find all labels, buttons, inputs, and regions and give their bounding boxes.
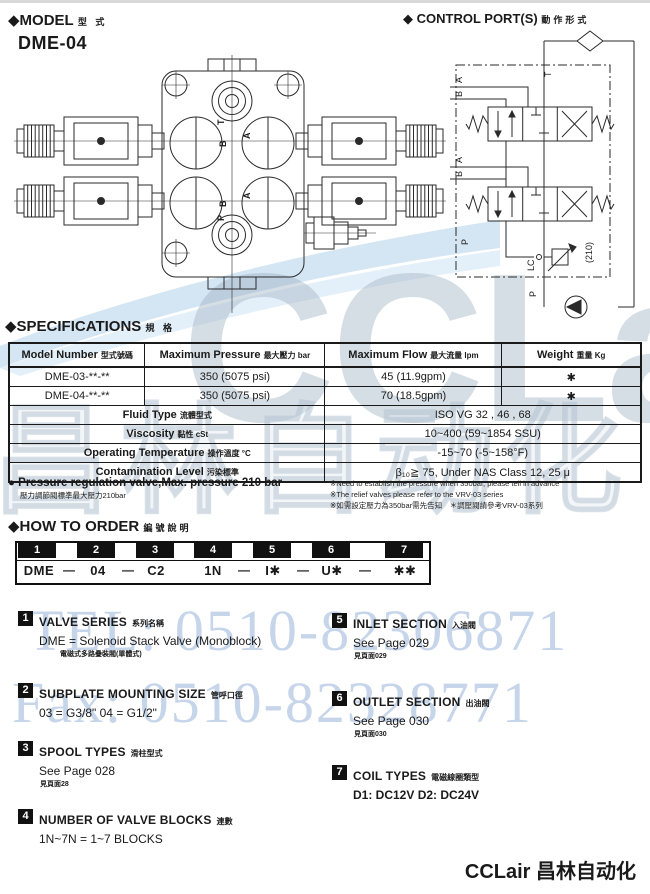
port-label-a-top: A [242,132,252,139]
table-row: Fluid Type 流體型式 ISO VG 32 , 46 , 68 [9,406,641,425]
section-line: See Page 028 [39,764,328,778]
table-row: Viscosity 黏性 cSt 10~400 (59~1854 SSU) [9,425,641,444]
property-value: ISO VG 32 , 46 , 68 [325,406,641,425]
pressure-regulation-note-cn: 壓力調節閥標準最大壓力210bar [20,490,328,501]
diamond-icon: ◆ [5,318,17,335]
section-number-badge: 7 [332,765,347,780]
section-line: DME = Solenoid Stack Valve (Monoblock) [39,634,328,648]
position-badge: 5 [253,543,291,558]
section-outlet: 6 OUTLET SECTION出油閥 See Page 030 見頁面030 [332,693,642,739]
cell-model: DME-04-**-** [9,387,145,406]
code-segment: I✱ [250,563,296,579]
section-number-of-blocks: 4 NUMBER OF VALVE BLOCKS連數 1N~7N = 1~7 B… [18,811,328,846]
position-badge: 6 [312,543,350,558]
port-label-b-bot: B [218,200,228,207]
header-max-pressure: Maximum Pressure 最大壓力 bar [145,343,325,367]
diamond-icon: ◆ [8,518,20,535]
table-row: Operating Temperature 操作溫度 °C -15~70 (-5… [9,444,641,463]
position-badge: 3 [136,543,174,558]
port-label-t: T [216,119,226,125]
section-line: 1N~7N = 1~7 BLOCKS [39,832,328,846]
order-code-table: 1 2 3 4 5 6 7 DME — 04 — C2 1N — I✱ — U✱… [15,541,431,585]
code-dash: — [355,563,375,577]
position-badge: 7 [385,543,423,558]
section-sub-cn: 電磁式多路疊裝閥(單體式) [60,649,328,659]
control-ports-title: ◆ CONTROL PORT(S) 動作形式 [403,11,589,27]
how-to-order-title-cn: 編號說明 [143,523,191,533]
schematic-label-lc: LC [526,259,536,271]
table-footnotes: ※Need to establish the pressure when 350… [330,479,645,512]
pressure-regulation-note: ● Pressure regulation valve,Max. pressur… [8,477,328,501]
position-badge: 2 [77,543,115,558]
section-line: D1: DC12V D2: DC24V [353,788,642,802]
diamond-icon: ◆ [403,11,413,26]
section-number-badge: 3 [18,741,33,756]
model-title-cn: 型 式 [78,17,108,27]
property-label: Operating Temperature 操作溫度 °C [9,444,325,463]
schematic-label-b1: B [454,91,464,97]
section-sub-cn: 見頁面029 [354,651,642,661]
section-inlet: 5 INLET SECTION入油閥 See Page 029 見頁面029 [332,615,642,661]
relief-fitting [304,217,376,249]
cell-pressure: 350 (5075 psi) [145,387,325,406]
footnote-3: ※如需設定壓力為350bar需先告知 ＊調壓閥請參考VRV-03系列 [330,501,645,512]
section-number-badge: 1 [18,611,33,626]
cell-weight: ✱ [502,367,641,387]
code-segment: 04 [75,563,121,578]
table-row: DME-04-**-** 350 (5075 psi) 70 (18.5gpm)… [9,387,641,406]
section-coil-types: 7 COIL TYPES電磁線圈類型 D1: DC12V D2: DC24V [332,767,642,802]
section-number-badge: 5 [332,613,347,628]
specifications-title-cn: 規 格 [145,323,175,333]
schematic-label-a2: A [454,157,464,163]
position-badge: 4 [194,543,232,558]
header-model-number: Model Number 型式號碼 [9,343,145,367]
footer-brand: CCLair 昌林自动化 [465,855,636,884]
cell-pressure: 350 (5075 psi) [145,367,325,387]
property-label: Viscosity 黏性 cSt [9,425,325,444]
table-row: DME-03-**-** 350 (5075 psi) 45 (11.9gpm)… [9,367,641,387]
code-segment: ✱✱ [382,563,428,579]
schematic-label-a1: A [454,77,464,83]
bullet-icon: ● [8,477,15,489]
datasheet-page: CCLair 昌林自动化 TEL: 0510-82306871 Fax: 051… [0,0,650,894]
schematic-label-p-side: P [460,239,470,245]
diamond-icon: ◆ [8,12,20,29]
how-to-order-title: ◆HOW TO ORDER 編號說明 [8,517,191,535]
footnote-1: ※Need to establish the pressure when 350… [330,479,645,490]
section-line: See Page 030 [353,714,642,728]
specifications-title: ◆SPECIFICATIONS 規 格 [5,317,175,335]
schematic-label-pressure: (210) [584,242,594,263]
position-badge: 1 [18,543,56,558]
hydraulic-schematic: T A B A B P LC (210) P [448,31,646,323]
property-value: -15~70 (-5~158°F) [325,444,641,463]
port-label-a-bot: A [242,192,252,199]
code-segment: U✱ [309,563,355,579]
section-sub-cn: 見頁面030 [354,729,642,739]
section-number-badge: 2 [18,683,33,698]
section-sub-cn: 見頁面28 [40,779,328,789]
section-line: See Page 029 [353,636,642,650]
specifications-table: Model Number 型式號碼 Maximum Pressure 最大壓力 … [8,342,642,483]
cell-model: DME-03-**-** [9,367,145,387]
code-segment: DME [16,563,62,578]
model-section-title: ◆MODEL 型 式 [8,11,107,29]
section-number-badge: 4 [18,809,33,824]
order-code-strip: DME — 04 — C2 1N — I✱ — U✱ — ✱✱ [17,561,429,582]
schematic-label-b2: B [454,171,464,177]
model-name: DME-04 [18,33,87,54]
code-segment: 1N [190,563,236,578]
section-line: 03 = G3/8" 04 = G1/2" [39,706,328,720]
cell-flow: 45 (11.9gpm) [325,367,502,387]
footnote-2: ※The relief valves please refer to the V… [330,490,645,501]
schematic-label-p-bottom: P [528,291,538,297]
section-spool-types: 3 SPOOL TYPES滑柱型式 See Page 028 見頁面28 [18,743,328,789]
table-header-row: Model Number 型式號碼 Maximum Pressure 最大壓力 … [9,343,641,367]
valve-technical-drawing: T B A B A P [10,55,450,313]
property-value: 10~400 (59~1854 SSU) [325,425,641,444]
header-weight: Weight 重量 Kg [502,343,641,367]
code-segment: C2 [133,563,179,578]
order-position-strip: 1 2 3 4 5 6 7 [17,543,429,561]
cell-flow: 70 (18.5gpm) [325,387,502,406]
section-valve-series: 1 VALVE SERIES系列名稱 DME = Solenoid Stack … [18,613,328,659]
port-label-b-top: B [218,140,228,147]
control-title-cn: 動作形式 [541,15,589,25]
property-label: Fluid Type 流體型式 [9,406,325,425]
cell-weight: ✱ [502,387,641,406]
header-max-flow: Maximum Flow 最大流量 lpm [325,343,502,367]
section-number-badge: 6 [332,691,347,706]
port-label-p: P [216,215,226,221]
schematic-label-t: T [543,71,553,77]
section-subplate-size: 2 SUBPLATE MOUNTING SIZE管呼口徑 03 = G3/8" … [18,685,328,720]
